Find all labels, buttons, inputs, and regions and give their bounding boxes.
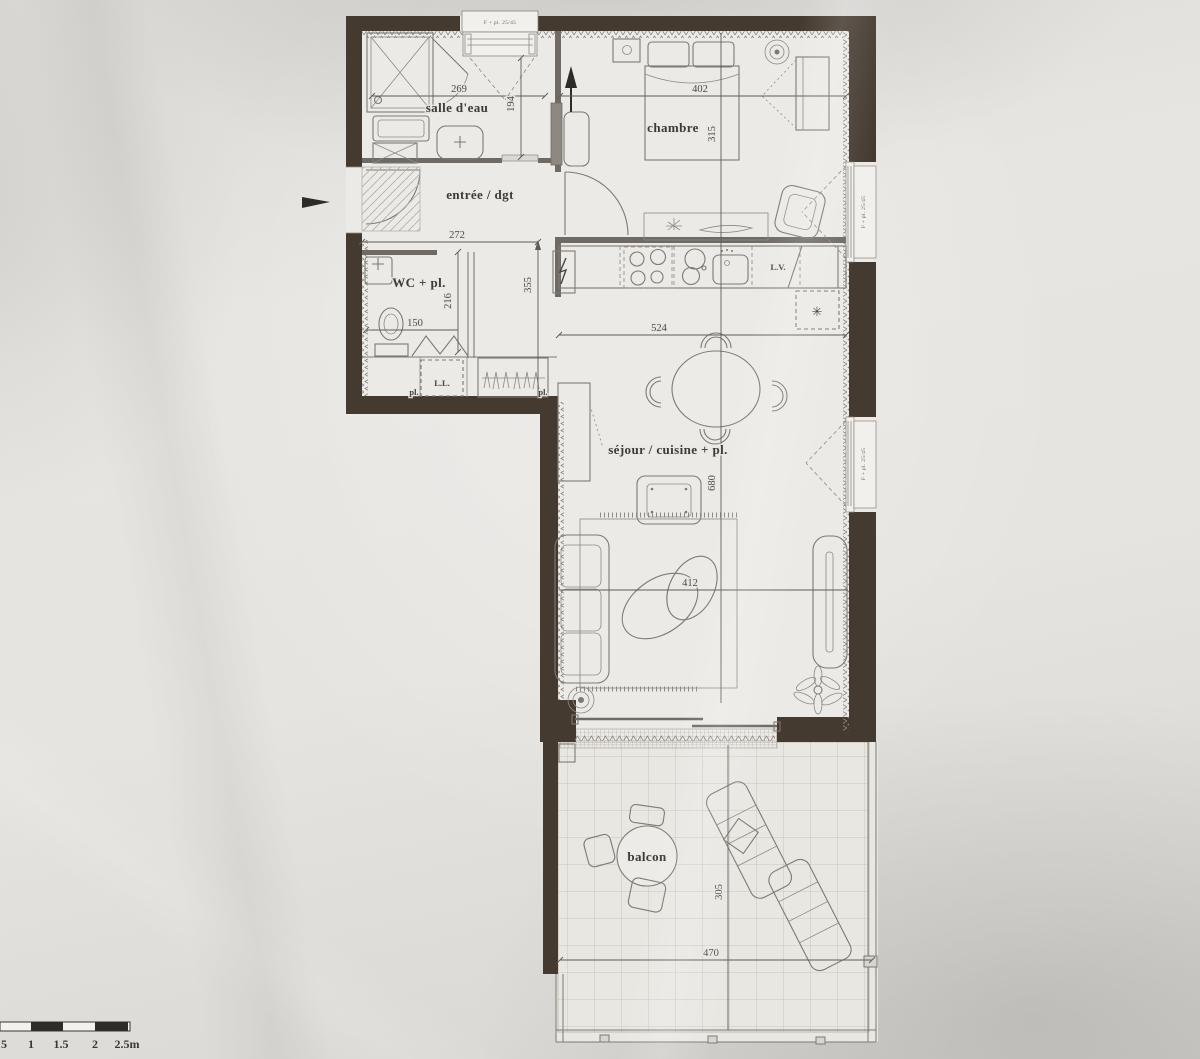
window-tag-right-lower: F + pl. 25/45 <box>861 448 867 480</box>
fridge-snowflake-icon: ✳ <box>812 304 823 319</box>
room-label-entree: entrée / dgt <box>446 187 514 202</box>
technical-shaft <box>362 167 420 231</box>
dishwasher-label: L.V. <box>771 262 786 272</box>
dining-table <box>672 351 760 427</box>
dim-hall-depth: 355 <box>523 277 534 293</box>
dim-cuisine-width: 524 <box>651 323 668 334</box>
dim-salle-deau-depth: 194 <box>506 95 517 112</box>
dim-entree-width: 272 <box>449 230 465 241</box>
dim-wc-depth: 216 <box>443 293 454 309</box>
washing-machine-label: L.L. <box>434 378 450 388</box>
dim-salle-deau-width: 269 <box>451 84 467 95</box>
room-label-sejour: séjour / cuisine + pl. <box>608 442 728 457</box>
room-label-wc: WC + pl. <box>392 275 446 290</box>
scale-label-2: 1.5 <box>54 1037 69 1051</box>
dim-chambre-depth: 315 <box>707 126 718 142</box>
room-label-balcon: balcon <box>627 849 667 864</box>
dim-balcon-width: 470 <box>703 948 719 959</box>
room-label-chambre: chambre <box>647 120 699 135</box>
dim-chambre-width: 402 <box>692 84 708 95</box>
closet-label-right: pl. <box>538 387 547 397</box>
dim-balcon-depth: 305 <box>714 884 725 900</box>
dim-sejour-width: 412 <box>682 578 698 589</box>
floor-plan-drawing: balcon <box>0 0 1200 1059</box>
scale-label-0: 5 <box>1 1037 7 1051</box>
entrance-marker-icon <box>302 197 330 208</box>
window-tag-top: F + pl. 25/45 <box>484 20 516 26</box>
scale-label-4: 2.5m <box>115 1037 140 1051</box>
radiator <box>551 103 562 165</box>
scale-label-1: 1 <box>28 1037 34 1051</box>
floor-plan-photo: balcon <box>0 0 1200 1059</box>
scale-bar: 5 1 1.5 2 2.5m <box>0 1022 140 1051</box>
room-label-salle-deau: salle d'eau <box>426 100 489 115</box>
scale-label-3: 2 <box>92 1037 98 1051</box>
closet-label-left: pl. <box>409 387 418 397</box>
window-tag-right-upper: F + pl. 25/45 <box>861 196 867 228</box>
dim-wc-width: 150 <box>407 318 423 329</box>
dim-sejour-depth: 680 <box>707 475 718 491</box>
